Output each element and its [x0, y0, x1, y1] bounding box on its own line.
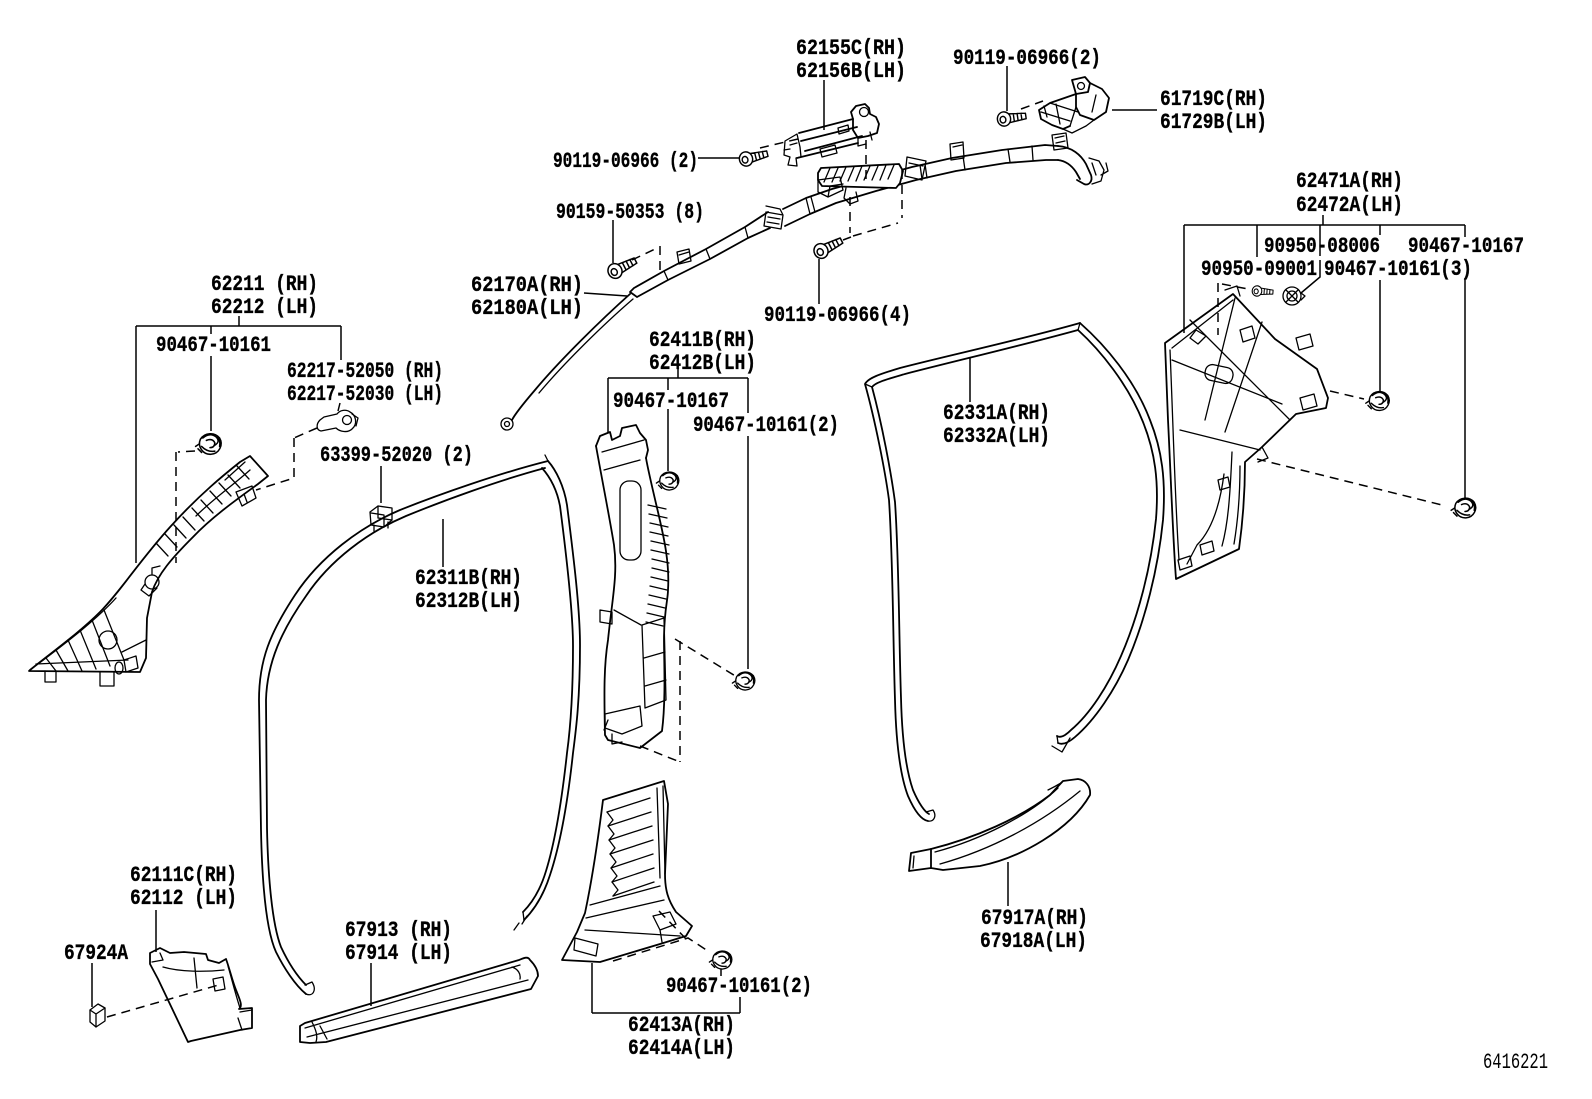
svg-text:90467-10161(2): 90467-10161(2)	[666, 974, 812, 999]
svg-text:62211 (RH): 62211 (RH)	[211, 272, 318, 297]
svg-text:62332A(LH): 62332A(LH)	[943, 424, 1050, 449]
svg-text:63399-52020 (2): 63399-52020 (2)	[320, 443, 473, 468]
svg-text:62413A(RH): 62413A(RH)	[628, 1013, 735, 1038]
svg-text:67913 (RH): 67913 (RH)	[345, 918, 452, 943]
svg-text:90467-10167: 90467-10167	[1408, 234, 1524, 259]
svg-text:90119-06966(4): 90119-06966(4)	[764, 303, 911, 328]
svg-text:62112 (LH): 62112 (LH)	[130, 886, 237, 911]
svg-text:62312B(LH): 62312B(LH)	[415, 589, 522, 614]
svg-text:62414A(LH): 62414A(LH)	[628, 1036, 735, 1061]
svg-text:62331A(RH): 62331A(RH)	[943, 401, 1050, 426]
svg-text:62156B(LH): 62156B(LH)	[796, 59, 906, 84]
svg-text:61729B(LH): 61729B(LH)	[1160, 110, 1267, 135]
svg-text:90467-10167: 90467-10167	[613, 389, 729, 414]
svg-text:67924A: 67924A	[64, 941, 129, 966]
svg-text:67918A(LH): 67918A(LH)	[980, 929, 1087, 954]
svg-text:90467-10161(2): 90467-10161(2)	[693, 413, 839, 438]
svg-text:90159-50353 (8): 90159-50353 (8)	[556, 200, 704, 225]
svg-text:62471A(RH): 62471A(RH)	[1296, 169, 1403, 194]
svg-text:62311B(RH): 62311B(RH)	[415, 566, 522, 591]
svg-text:62111C(RH): 62111C(RH)	[130, 863, 237, 888]
svg-text:62217-52050 (RH): 62217-52050 (RH)	[287, 359, 443, 384]
svg-text:62217-52030 (LH): 62217-52030 (LH)	[287, 382, 443, 407]
svg-text:62170A(RH): 62170A(RH)	[471, 273, 583, 298]
svg-text:90950-09001: 90950-09001	[1201, 257, 1317, 282]
svg-text:62155C(RH): 62155C(RH)	[796, 36, 906, 61]
svg-text:62411B(RH): 62411B(RH)	[649, 328, 756, 353]
svg-text:90950-08006: 90950-08006	[1264, 234, 1380, 259]
svg-text:62472A(LH): 62472A(LH)	[1296, 193, 1403, 218]
svg-text:62412B(LH): 62412B(LH)	[649, 351, 756, 376]
svg-text:61719C(RH): 61719C(RH)	[1160, 87, 1267, 112]
svg-text:67914 (LH): 67914 (LH)	[345, 941, 452, 966]
svg-text:67917A(RH): 67917A(RH)	[981, 906, 1088, 931]
svg-text:90467-10161: 90467-10161	[156, 333, 271, 358]
svg-text:62180A(LH): 62180A(LH)	[471, 296, 583, 321]
svg-text:90119-06966(2): 90119-06966(2)	[953, 46, 1101, 71]
svg-text:62212 (LH): 62212 (LH)	[211, 295, 318, 320]
svg-text:6416221: 6416221	[1483, 1050, 1548, 1075]
svg-text:90467-10161(3): 90467-10161(3)	[1324, 257, 1472, 282]
svg-text:90119-06966 (2): 90119-06966 (2)	[553, 149, 698, 174]
